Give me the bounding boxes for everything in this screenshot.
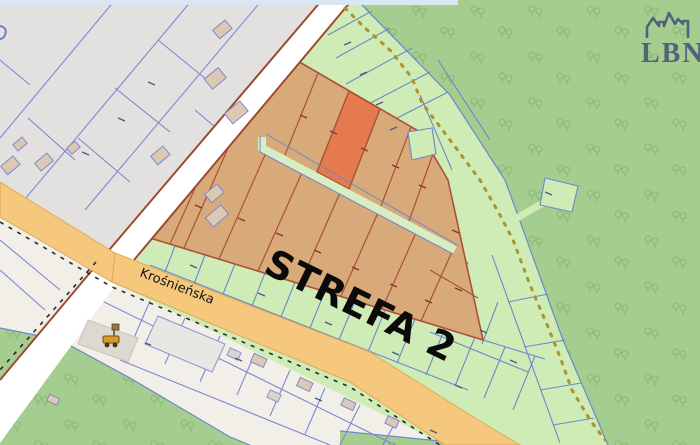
logo-text: LBN	[641, 38, 700, 69]
top-boundary-strip	[0, 0, 458, 5]
map-canvas[interactable]: STREFA 2 Krośnieńska LBN	[0, 0, 700, 445]
